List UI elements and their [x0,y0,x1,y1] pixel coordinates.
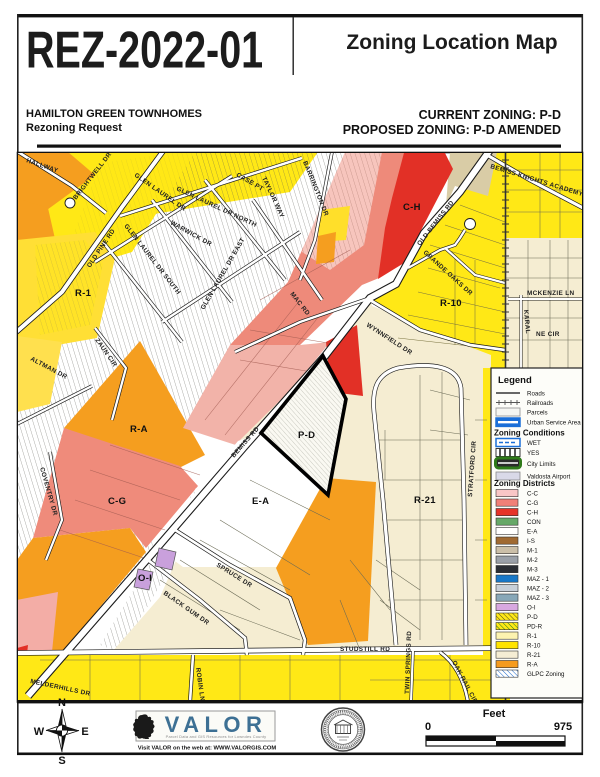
svg-text:WET: WET [527,440,541,447]
svg-text:Urban Service Area: Urban Service Area [527,420,581,427]
svg-text:E-A: E-A [252,496,269,507]
svg-text:C-G: C-G [108,496,126,507]
svg-text:Feet: Feet [483,708,506,720]
svg-text:NE CIR: NE CIR [536,331,560,338]
svg-text:N: N [58,697,66,709]
svg-text:P-D: P-D [527,614,538,621]
svg-text:M-1: M-1 [527,548,538,555]
svg-text:E-A: E-A [527,529,538,536]
svg-text:O-I: O-I [527,605,536,612]
svg-text:R-1: R-1 [75,288,92,299]
svg-text:MAZ - 1: MAZ - 1 [527,576,550,583]
svg-text:GLPC Zoning: GLPC Zoning [527,671,565,678]
svg-text:Visit VALOR on the web at: WW: Visit VALOR on the web at: WWW.VALORGIS.… [138,746,277,752]
svg-text:CURRENT ZONING: P-D: CURRENT ZONING: P-D [419,108,561,122]
svg-text:Parcels: Parcels [527,410,548,417]
svg-text:MAZ - 2: MAZ - 2 [527,586,550,593]
svg-text:Zoning Location Map: Zoning Location Map [346,31,557,54]
svg-text:S: S [58,755,65,767]
svg-text:R-10: R-10 [527,643,541,650]
svg-text:R-21: R-21 [527,652,541,659]
svg-text:W: W [34,726,45,738]
svg-text:Zoning Conditions: Zoning Conditions [494,429,565,438]
svg-text:P-D: P-D [298,430,315,441]
svg-text:STUDSTILL RD: STUDSTILL RD [340,646,390,653]
svg-text:Roads: Roads [527,391,545,398]
svg-text:Parcel Data and GIS Resources: Parcel Data and GIS Resources for Lownde… [166,734,267,739]
svg-text:975: 975 [554,721,572,733]
svg-text:MCKENZIE LN: MCKENZIE LN [527,290,575,297]
svg-text:E: E [81,726,88,738]
svg-text:C-H: C-H [403,202,421,213]
svg-text:Railroads: Railroads [527,400,553,407]
svg-text:M-3: M-3 [527,567,538,574]
svg-text:O-I: O-I [138,573,152,584]
svg-text:R-21: R-21 [414,495,436,506]
svg-text:C-C: C-C [527,491,539,498]
svg-text:R-A: R-A [527,662,539,669]
svg-text:R-10: R-10 [440,298,462,309]
svg-text:R-1: R-1 [527,633,538,640]
svg-text:Rezoning Request: Rezoning Request [26,122,122,134]
svg-text:REZ-2022-01: REZ-2022-01 [26,20,263,79]
svg-text:R-A: R-A [130,424,148,435]
svg-text:Zoning Districts: Zoning Districts [494,479,555,488]
svg-text:YES: YES [527,450,539,457]
svg-text:0: 0 [425,721,431,733]
svg-text:Legend: Legend [498,375,532,386]
svg-text:M-2: M-2 [527,557,538,564]
svg-text:I-S: I-S [527,538,535,545]
svg-text:PD-R: PD-R [527,624,543,631]
svg-text:CON: CON [527,519,541,526]
svg-text:C-H: C-H [527,510,538,517]
svg-text:City Limits: City Limits [527,461,556,468]
svg-text:MAZ - 3: MAZ - 3 [527,595,550,602]
svg-text:PROPOSED ZONING: P-D AMENDED: PROPOSED ZONING: P-D AMENDED [343,123,561,137]
svg-text:C-G: C-G [527,500,539,507]
svg-text:HAMILTON GREEN TOWNHOMES: HAMILTON GREEN TOWNHOMES [26,108,202,120]
